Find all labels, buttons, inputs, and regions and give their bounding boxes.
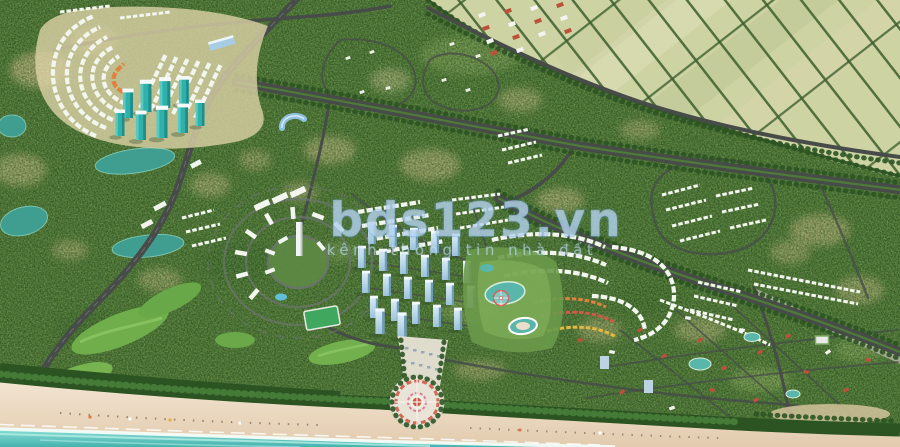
villa-pond bbox=[744, 333, 760, 342]
villa-pond bbox=[786, 390, 800, 398]
villa-pond bbox=[689, 358, 711, 370]
midrise-tower bbox=[644, 380, 653, 393]
beach-plaza bbox=[390, 375, 444, 429]
midrise-tower bbox=[600, 356, 609, 369]
masterplan-scene bbox=[0, 0, 900, 447]
ferris-wheel bbox=[494, 291, 509, 306]
green-roof-building bbox=[816, 336, 829, 344]
aerial-masterplan-screenshot: bds123.vn kênh thông tin nhà đất bbox=[0, 0, 900, 447]
pool bbox=[275, 294, 287, 301]
